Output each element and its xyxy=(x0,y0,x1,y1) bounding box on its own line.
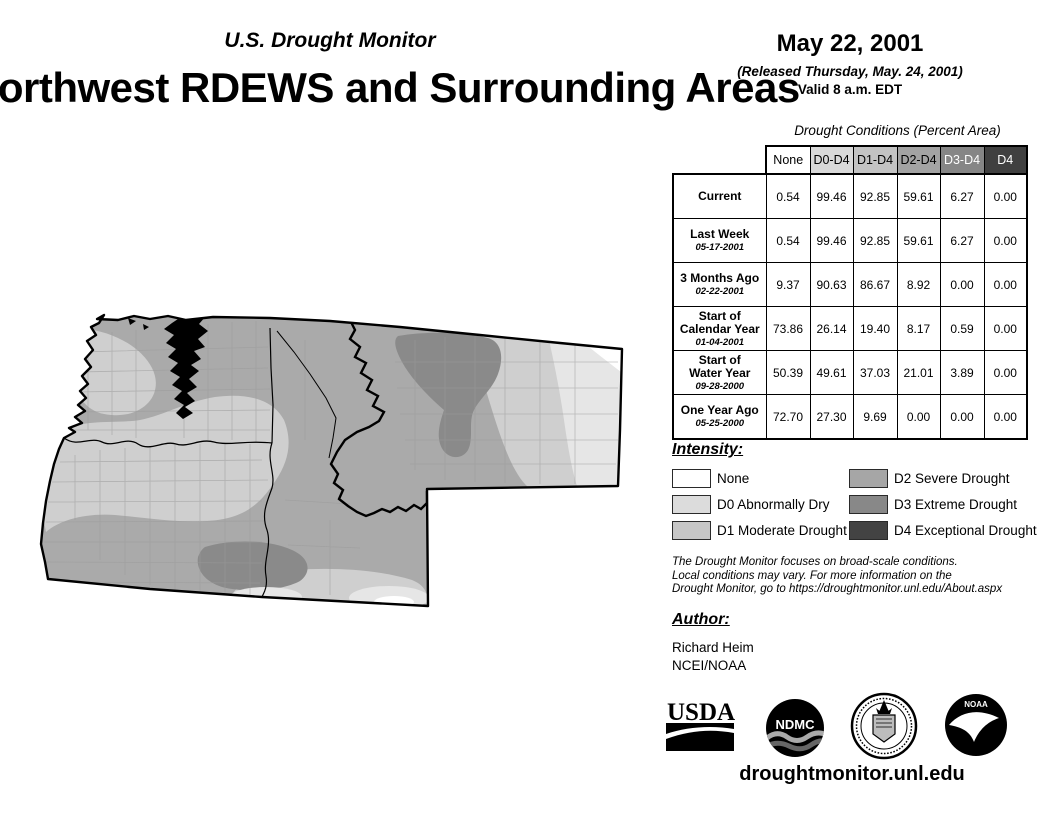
drought-conditions-table: None D0-D4 D1-D4 D2-D4 D3-D4 D4 Current … xyxy=(672,145,1028,440)
table-cell: 99.46 xyxy=(810,174,853,219)
table-cell: 8.92 xyxy=(897,263,940,307)
table-cell: 0.00 xyxy=(940,395,984,440)
table-cell: 6.27 xyxy=(940,174,984,219)
table-cell: 92.85 xyxy=(853,174,897,219)
table-cell: 59.61 xyxy=(897,174,940,219)
col-header-d3d4: D3-D4 xyxy=(940,146,984,174)
legend-swatch-d2 xyxy=(849,469,888,488)
ndmc-logo: NDMC xyxy=(765,698,825,758)
row-label: Start of Water Year09-28-2000 xyxy=(673,351,766,395)
map-region-none-south-idaho xyxy=(374,596,414,608)
table-row-3-months-ago: 3 Months Ago02-22-2001 9.37 90.63 86.67 … xyxy=(673,263,1027,307)
table-cell: 50.39 xyxy=(766,351,810,395)
table-row-start-calendar-year: Start of Calendar Year01-04-2001 73.86 2… xyxy=(673,307,1027,351)
disclaimer-text: The Drought Monitor focuses on broad-sca… xyxy=(672,556,1042,597)
legend-label-d3: D3 Extreme Drought xyxy=(894,495,1017,514)
commerce-seal-logo xyxy=(850,692,918,760)
table-cell: 0.59 xyxy=(940,307,984,351)
table-cell: 86.67 xyxy=(853,263,897,307)
table-cell: 0.00 xyxy=(984,351,1027,395)
intensity-title: Intensity: xyxy=(672,441,743,459)
disclaimer-line: Drought Monitor, go to https://droughtmo… xyxy=(672,583,1042,597)
table-cell: 8.17 xyxy=(897,307,940,351)
table-cell: 0.00 xyxy=(940,263,984,307)
table-cell: 72.70 xyxy=(766,395,810,440)
table-cell: 0.54 xyxy=(766,219,810,263)
row-label: 3 Months Ago02-22-2001 xyxy=(673,263,766,307)
legend-swatch-d1 xyxy=(672,521,711,540)
legend-label-none: None xyxy=(717,469,749,488)
row-label: Last Week05-17-2001 xyxy=(673,219,766,263)
legend-label-d1: D1 Moderate Drought xyxy=(717,521,847,540)
table-cell: 99.46 xyxy=(810,219,853,263)
table-cell: 0.00 xyxy=(984,395,1027,440)
row-label: Start of Calendar Year01-04-2001 xyxy=(673,307,766,351)
col-header-d4: D4 xyxy=(984,146,1027,174)
usda-logo: USDA xyxy=(666,699,736,755)
table-cell: 9.69 xyxy=(853,395,897,440)
ndmc-logo-text: NDMC xyxy=(776,717,816,732)
legend-label-d2: D2 Severe Drought xyxy=(894,469,1010,488)
table-title: Drought Conditions (Percent Area) xyxy=(767,123,1028,138)
table-corner-cell xyxy=(673,146,766,174)
footer-url: droughtmonitor.unl.edu xyxy=(672,763,1032,786)
disclaimer-line: The Drought Monitor focuses on broad-sca… xyxy=(672,556,1042,570)
table-cell: 0.54 xyxy=(766,174,810,219)
table-cell: 21.01 xyxy=(897,351,940,395)
col-header-d1d4: D1-D4 xyxy=(853,146,897,174)
table-cell: 26.14 xyxy=(810,307,853,351)
noaa-logo: NOAA xyxy=(943,692,1009,758)
table-cell: 0.00 xyxy=(984,307,1027,351)
author-name: Richard Heim xyxy=(672,640,754,655)
table-cell: 90.63 xyxy=(810,263,853,307)
map-region-title: Northwest RDEWS and Surrounding Areas xyxy=(0,64,800,112)
table-cell: 0.00 xyxy=(897,395,940,440)
row-label: One Year Ago05-25-2000 xyxy=(673,395,766,440)
noaa-logo-text: NOAA xyxy=(964,700,988,709)
table-cell: 73.86 xyxy=(766,307,810,351)
row-label: Current xyxy=(673,174,766,219)
table-cell: 37.03 xyxy=(853,351,897,395)
table-row-last-week: Last Week05-17-2001 0.54 99.46 92.85 59.… xyxy=(673,219,1027,263)
table-cell: 59.61 xyxy=(897,219,940,263)
legend-label-d4: D4 Exceptional Drought xyxy=(894,521,1037,540)
table-cell: 0.00 xyxy=(984,263,1027,307)
table-cell: 19.40 xyxy=(853,307,897,351)
usda-logo-text: USDA xyxy=(667,699,735,726)
table-row-current: Current 0.54 99.46 92.85 59.61 6.27 0.00 xyxy=(673,174,1027,219)
legend-swatch-none xyxy=(672,469,711,488)
col-header-none: None xyxy=(766,146,810,174)
disclaimer-line: Local conditions may vary. For more info… xyxy=(672,570,1042,584)
author-title: Author: xyxy=(672,611,730,629)
table-cell: 27.30 xyxy=(810,395,853,440)
table-cell: 6.27 xyxy=(940,219,984,263)
table-row-one-year-ago: One Year Ago05-25-2000 72.70 27.30 9.69 … xyxy=(673,395,1027,440)
table-header-row: None D0-D4 D1-D4 D2-D4 D3-D4 D4 xyxy=(673,146,1027,174)
drought-monitor-page: { "header": { "monitor_title": "U.S. Dro… xyxy=(0,0,1056,816)
col-header-d2d4: D2-D4 xyxy=(897,146,940,174)
legend-swatch-d3 xyxy=(849,495,888,514)
table-row-start-water-year: Start of Water Year09-28-2000 50.39 49.6… xyxy=(673,351,1027,395)
author-org: NCEI/NOAA xyxy=(672,658,746,673)
table-cell: 0.00 xyxy=(984,219,1027,263)
table-cell: 0.00 xyxy=(984,174,1027,219)
map-date: May 22, 2001 xyxy=(670,30,1030,58)
table-cell: 9.37 xyxy=(766,263,810,307)
monitor-title: U.S. Drought Monitor xyxy=(0,29,660,53)
table-cell: 92.85 xyxy=(853,219,897,263)
table-cell: 3.89 xyxy=(940,351,984,395)
table-cell: 49.61 xyxy=(810,351,853,395)
legend-label-d0: D0 Abnormally Dry xyxy=(717,495,830,514)
col-header-d0d4: D0-D4 xyxy=(810,146,853,174)
legend-swatch-d0 xyxy=(672,495,711,514)
legend-swatch-d4 xyxy=(849,521,888,540)
